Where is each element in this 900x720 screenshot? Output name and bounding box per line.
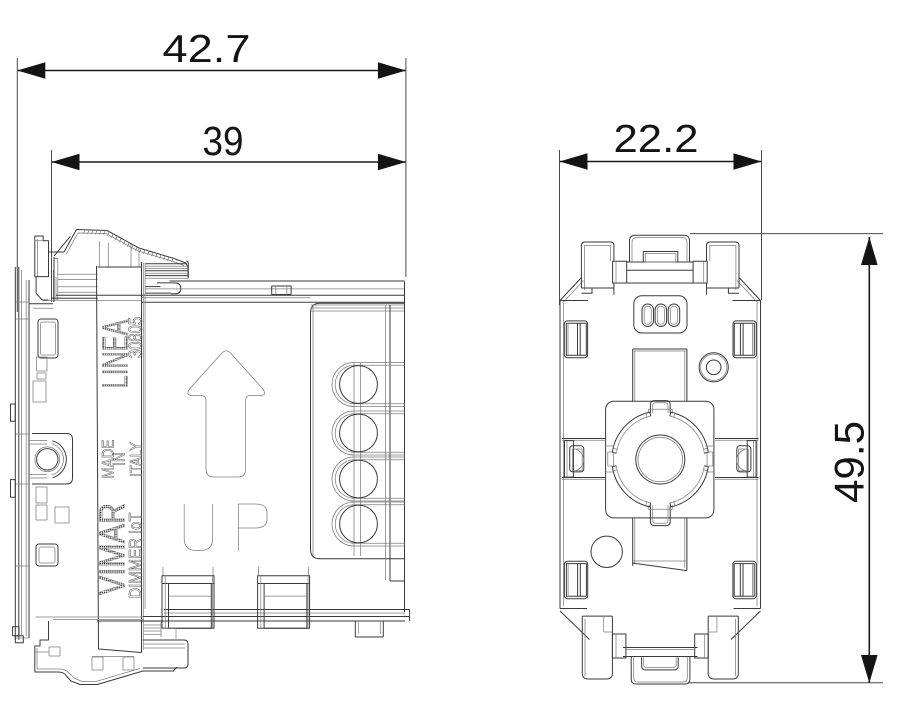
svg-text:30805: 30805 — [125, 317, 146, 358]
svg-text:49.5: 49.5 — [826, 421, 873, 503]
svg-text:42.7: 42.7 — [163, 28, 251, 71]
svg-text:22.2: 22.2 — [614, 118, 699, 161]
svg-text:DIMMER IoT: DIMMER IoT — [126, 512, 145, 598]
svg-text:ITALY: ITALY — [127, 442, 146, 477]
svg-text:39: 39 — [203, 118, 244, 164]
